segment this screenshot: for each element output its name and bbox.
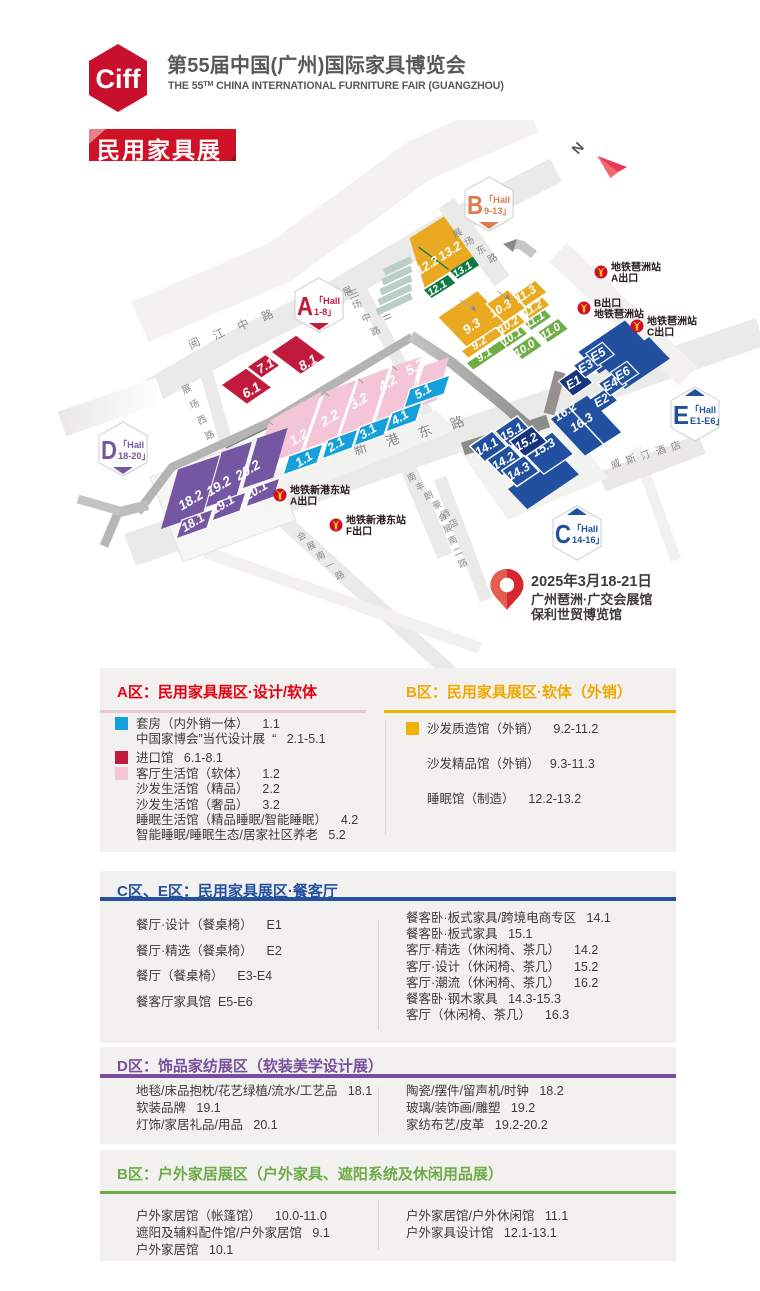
svg-text:A: A xyxy=(297,291,313,321)
svg-text:地铁琶洲站: 地铁琶洲站 xyxy=(594,307,644,320)
svg-text:B出口: B出口 xyxy=(594,297,621,310)
svg-text:地铁新港东站: 地铁新港东站 xyxy=(290,484,350,497)
svg-text:A出口: A出口 xyxy=(611,271,638,284)
svg-text:C: C xyxy=(555,519,571,549)
svg-text:1-8」: 1-8」 xyxy=(314,307,336,317)
svg-text:18-20」: 18-20」 xyxy=(118,451,151,461)
svg-text:保利世贸博览馆: 保利世贸博览馆 xyxy=(530,607,622,622)
svg-text:D: D xyxy=(101,435,117,465)
svg-text:E1-E6」: E1-E6」 xyxy=(690,416,725,426)
svg-text:A出口: A出口 xyxy=(290,494,317,507)
svg-text:B: B xyxy=(467,190,483,220)
svg-text:E: E xyxy=(673,400,689,430)
svg-text:2025年3月18-21日: 2025年3月18-21日 xyxy=(531,572,652,590)
svg-text:西: 西 xyxy=(196,413,209,427)
svg-text:「Hall: 「Hall xyxy=(690,404,716,415)
svg-text:「Hall: 「Hall xyxy=(572,523,598,534)
svg-text:9-13」: 9-13」 xyxy=(484,206,512,216)
svg-text:路: 路 xyxy=(203,428,217,443)
svg-text:场: 场 xyxy=(188,398,201,412)
svg-text:地铁琶洲站: 地铁琶洲站 xyxy=(647,315,697,328)
svg-text:地铁新港东站: 地铁新港东站 xyxy=(346,514,406,527)
svg-text:N: N xyxy=(568,139,587,157)
svg-text:「Hall: 「Hall xyxy=(484,194,510,205)
svg-text:F出口: F出口 xyxy=(346,524,372,537)
svg-text:广州琶洲·广交会展馆: 广州琶洲·广交会展馆 xyxy=(531,592,652,607)
svg-text:Ciff: Ciff xyxy=(96,64,142,94)
svg-text:C出口: C出口 xyxy=(647,325,674,338)
svg-text:「Hall: 「Hall xyxy=(118,439,144,450)
svg-text:「Hall: 「Hall xyxy=(314,295,340,306)
svg-text:14-16」: 14-16」 xyxy=(572,535,605,545)
svg-text:地铁琶洲站: 地铁琶洲站 xyxy=(611,261,661,274)
